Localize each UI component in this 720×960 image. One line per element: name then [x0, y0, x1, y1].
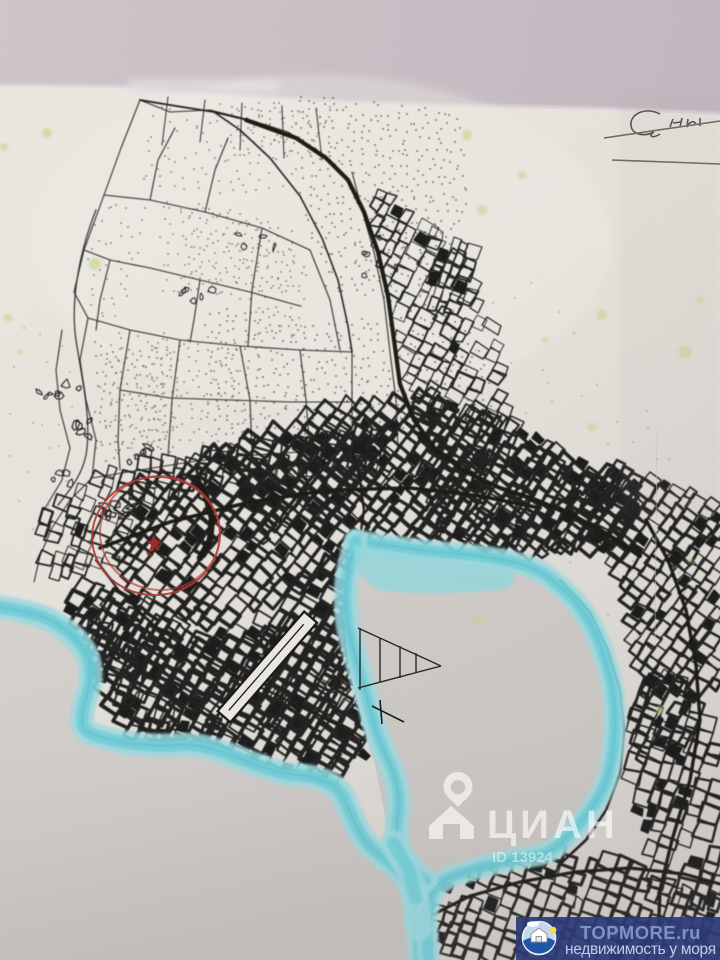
svg-text:недвижимость у моря: недвижимость у моря [565, 941, 716, 958]
svg-text:ЦИАН: ЦИАН [487, 803, 619, 847]
svg-text:ID 13924: ID 13924 [492, 849, 554, 866]
svg-text:TOPMORE.ru: TOPMORE.ru [580, 922, 701, 943]
